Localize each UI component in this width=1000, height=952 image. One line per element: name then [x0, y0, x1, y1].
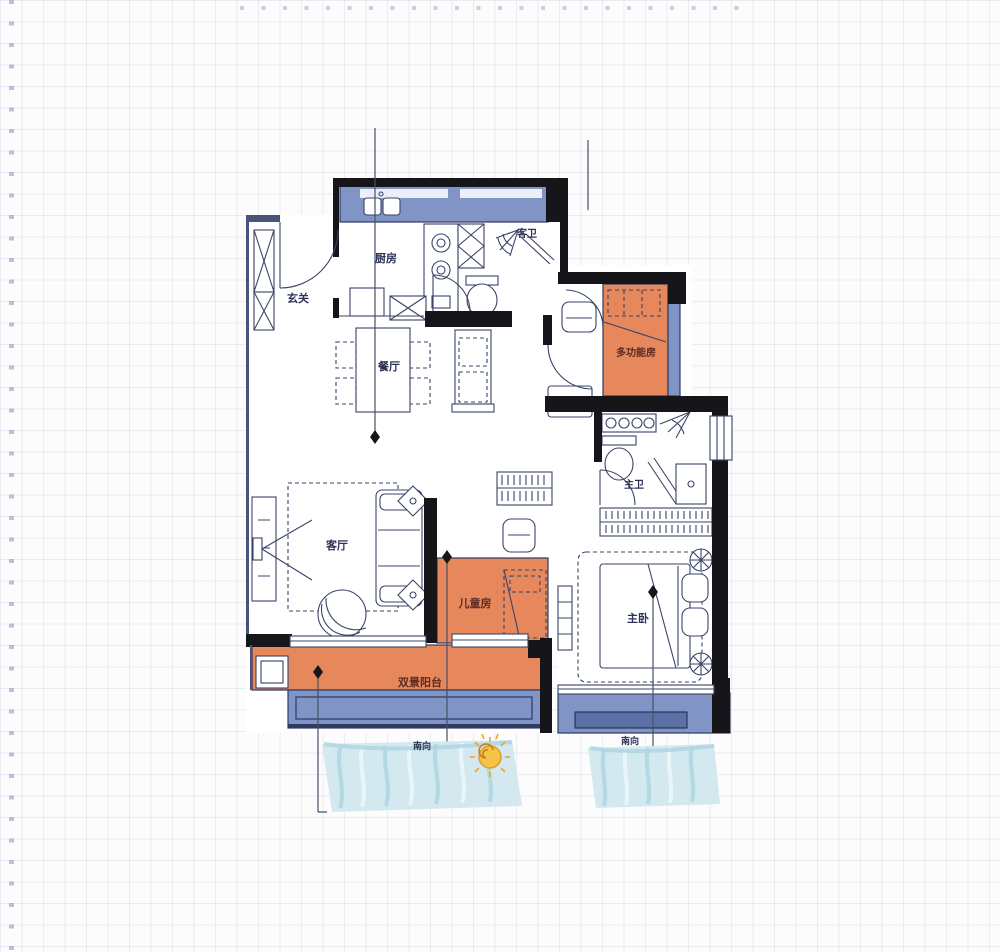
floor-plan: 玄关 厨房 客卫 餐厅 多功能房 主卫 客厅 儿童房 主卧 双景阳台 南向 南向	[0, 0, 1000, 952]
oven	[350, 288, 384, 316]
tv-icon	[253, 538, 262, 560]
label-multi-room: 多功能房	[616, 346, 656, 359]
water-view-right	[588, 744, 720, 808]
pillow	[682, 608, 708, 636]
niche-closet	[710, 416, 732, 460]
chair	[562, 302, 596, 332]
balcony-window-band	[288, 690, 545, 728]
lounge-chair	[318, 590, 366, 638]
shelf-unit	[458, 224, 484, 268]
label-dining: 餐厅	[377, 359, 400, 373]
label-kitchen: 厨房	[375, 251, 397, 265]
label-entry: 玄关	[287, 291, 309, 305]
label-kids-room: 儿童房	[458, 596, 492, 610]
wardrobe	[600, 508, 712, 536]
entry-closet	[254, 230, 274, 330]
label-living: 客厅	[325, 538, 348, 552]
kids-room-floor	[437, 558, 548, 643]
shower-tray	[676, 464, 706, 504]
label-orientation-right: 南向	[621, 735, 639, 747]
toilet-tank	[602, 436, 636, 445]
label-orientation-left: 南向	[413, 740, 431, 752]
bay-window-sill	[575, 712, 687, 728]
plant-icon	[690, 653, 712, 675]
sink-basin	[383, 198, 400, 215]
label-guest-bath: 客卫	[516, 227, 537, 240]
sink-basin	[364, 198, 381, 215]
pillow	[682, 574, 708, 602]
label-balcony: 双景阳台	[398, 675, 442, 689]
balcony-cabinet	[256, 656, 288, 688]
plant-icon	[690, 549, 712, 571]
label-master-bedroom: 主卧	[627, 611, 649, 625]
tall-cabinet	[455, 330, 491, 408]
label-master-bath: 主卫	[624, 478, 644, 491]
